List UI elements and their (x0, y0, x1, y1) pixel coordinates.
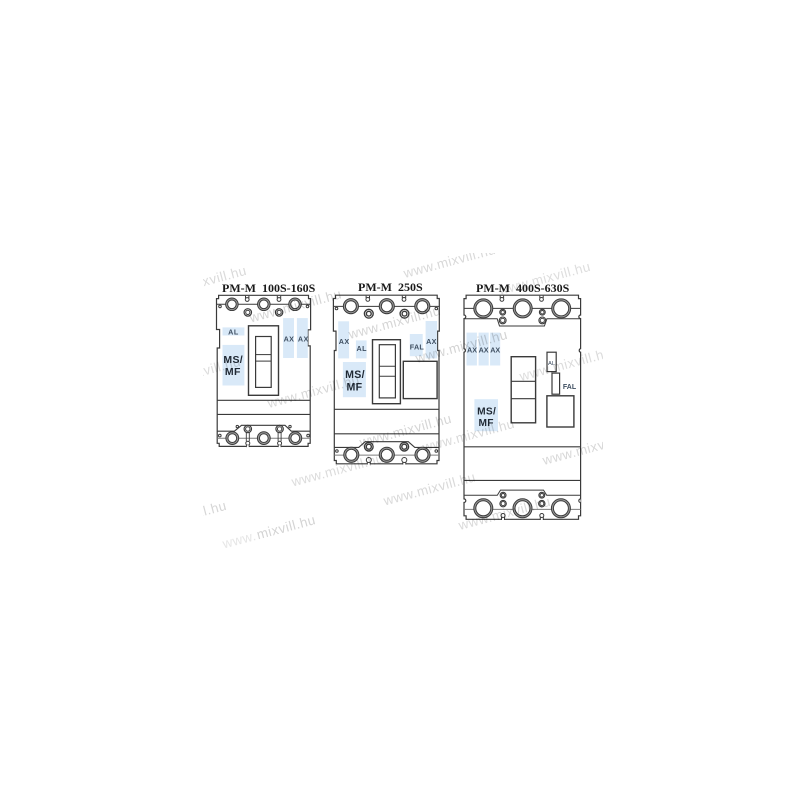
svg-text:AX: AX (490, 345, 500, 354)
svg-text:PM-M 100S-160S: PM-M 100S-160S (222, 281, 316, 295)
svg-text:MS/: MS/ (477, 407, 496, 418)
svg-text:AL: AL (357, 344, 368, 353)
svg-text:PM-M 250S: PM-M 250S (358, 280, 423, 294)
svg-text:AX: AX (426, 337, 437, 346)
svg-text:AX: AX (298, 334, 309, 343)
svg-text:AX: AX (284, 334, 295, 343)
svg-text:AL: AL (228, 327, 239, 336)
svg-text:AX: AX (339, 337, 350, 346)
svg-text:FAL: FAL (563, 384, 577, 391)
